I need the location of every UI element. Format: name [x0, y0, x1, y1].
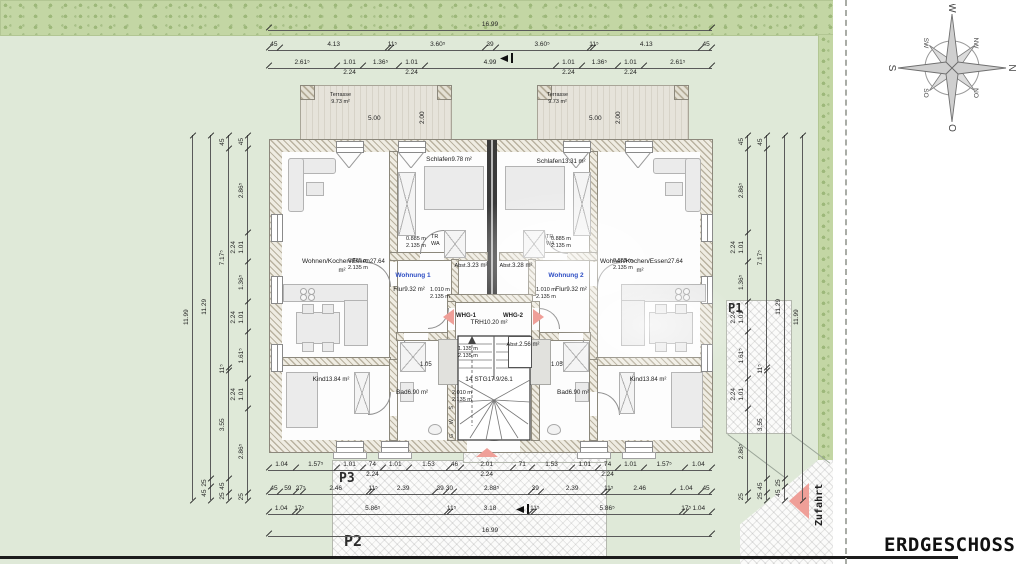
terrace-right-width-dim: 5.00 — [589, 116, 602, 123]
door-width: 0.885 m — [406, 236, 426, 242]
terrace-post — [674, 85, 689, 100]
window — [701, 344, 713, 372]
niche-dim: 1.05 — [420, 362, 432, 369]
dim-segment: 742.24 — [363, 460, 382, 476]
dim-segment: 2.46 — [607, 484, 672, 500]
dim-segment: 3.18 — [450, 504, 530, 520]
cooktop-burner — [300, 294, 307, 301]
dim-segment: 4.13 — [280, 40, 388, 56]
svg-text:SO: SO — [922, 88, 929, 97]
whg1-entry-label: WHG-1 — [456, 313, 476, 320]
dim-segment: 1.012.24 — [336, 58, 362, 74]
dining-table — [296, 312, 340, 344]
dining-table — [649, 312, 693, 344]
floor-plan-sheet: P1 P3 P2 Zufahrt Terrasse9.73 m² Terrass… — [0, 0, 1024, 564]
door-height: 2.135 m — [458, 353, 478, 359]
dim-segment: 3.55 — [756, 371, 772, 479]
chair — [675, 304, 687, 314]
dim-segment: 16.99 — [268, 526, 712, 542]
room-label-abst-core: Abst.2.56 m² — [493, 342, 553, 349]
dim-segment: 1.012.24 — [617, 58, 643, 74]
svg-text:N: N — [1006, 64, 1016, 71]
dim-segment: 1.57⁵ — [644, 460, 685, 476]
door-height: 2.135 m — [430, 294, 450, 300]
cooktop-burner — [675, 294, 682, 301]
driveway-label: Zufahrt — [814, 476, 825, 526]
dim-segment: 1.012.24 — [555, 58, 581, 74]
wardrobe — [573, 172, 591, 236]
terrace-right-label: Terrasse9.73 m² — [547, 92, 568, 105]
door-width: 0.885 m — [613, 258, 633, 264]
whg2-entry-label: WHG-2 — [503, 313, 523, 320]
terrace-left-label: Terrasse9.73 m² — [330, 92, 351, 105]
window-sill — [333, 452, 367, 459]
room-label-wohnen-right: Wohnen/Kochen/Essen27.64 m² — [600, 258, 680, 275]
dim-segment: 4.13 — [592, 40, 700, 56]
terrace-right-depth-dim: 2.00 — [616, 102, 623, 124]
dim-chain-left-total: 11.99 — [182, 135, 198, 500]
terrace-left — [300, 85, 452, 142]
chair — [675, 342, 687, 352]
dim-segment: 1.04 — [685, 460, 712, 476]
niche-dim: 1.05 — [551, 362, 563, 369]
door-width: 2.010 m — [452, 390, 472, 396]
door-width: 0.885 m — [551, 236, 571, 242]
dim-segment: 11.99 — [182, 135, 198, 500]
dim-segment: 11.29 — [200, 135, 216, 479]
door-height: 2.135 m — [536, 294, 556, 300]
room-label-abst-right: Abst.3.28 m² — [486, 263, 546, 270]
terrace-post — [437, 85, 452, 100]
site-boundary-line — [0, 556, 958, 559]
sofa — [685, 158, 701, 212]
dim-segment: 1.012.24 — [398, 58, 424, 74]
dim-chain-bottom-axes: 455927⁵2.4611⁵2.3939302.88⁵392.3911⁵2.46… — [268, 484, 712, 500]
toilet — [547, 424, 561, 435]
kitchen-unit — [344, 300, 368, 346]
dim-segment: 2.88⁵ — [453, 484, 530, 500]
dim-segment: 5.86⁵ — [533, 504, 681, 520]
door-height: 2.135 m — [452, 397, 472, 403]
dim-segment: 71 — [513, 460, 532, 476]
dim-segment: 1.012.24 — [737, 302, 753, 332]
property-dashed-line — [845, 0, 847, 564]
door-swing-mark — [336, 152, 362, 168]
door-width: 0.885 m — [348, 258, 368, 264]
dim-segment: 2.86⁵ — [737, 148, 753, 232]
chair — [322, 304, 334, 314]
coffee-table — [665, 182, 683, 196]
door-height: 2.135 m — [348, 265, 368, 271]
door-opening — [543, 253, 567, 260]
shower — [563, 342, 589, 372]
dim-segment: 1.01 — [382, 460, 408, 476]
dim-segment: 5.86⁵ — [299, 504, 447, 520]
door-swing-mark — [625, 152, 651, 168]
apartment-label-2: Wohnung 2 — [526, 272, 606, 280]
dim-segment: 45 — [756, 135, 772, 149]
dim-segment: 1.04 — [686, 504, 712, 520]
door-opening — [404, 333, 428, 340]
dim-segment: 25 — [737, 493, 753, 500]
window — [271, 344, 283, 372]
dim-segment: 2.86⁵ — [237, 148, 253, 232]
dim-chain-top-total: 16.99 — [268, 20, 712, 36]
coffee-table — [306, 182, 324, 196]
window — [271, 276, 283, 304]
dim-segment: 45 — [218, 135, 234, 149]
dim-chain-top-openings: 2.61⁵1.012.241.36⁵1.012.244.991.012.241.… — [268, 58, 712, 74]
sheet-title: ERDGESCHOSS — [884, 534, 1015, 556]
door-height: 2.135 m — [613, 265, 633, 271]
door-width: 1.010 m — [430, 287, 450, 293]
chair — [302, 342, 314, 352]
dim-segment: 1.61⁵ — [237, 332, 253, 379]
dim-segment: 1.36⁵ — [237, 262, 253, 302]
dim-chain-right-total: 11.99 — [792, 135, 808, 500]
dim-chain-right-openings: 452.86⁵1.012.241.36⁵1.012.241.61⁵1.012.2… — [737, 135, 753, 500]
room-label-kind-left: Kind13.84 m² — [291, 376, 371, 385]
dim-segment: 2.86⁵ — [737, 409, 753, 493]
svg-text:S: S — [888, 65, 897, 72]
dim-segment: 742.24 — [598, 460, 617, 476]
dim-segment: 1.012.24 — [237, 302, 253, 332]
dim-chain-left-openings: 452.86⁵1.012.241.36⁵1.012.241.61⁵1.012.2… — [237, 135, 253, 500]
dim-segment: 2.46 — [303, 484, 368, 500]
dim-segment: 1.04 — [268, 504, 294, 520]
kitchen-unit — [621, 300, 645, 346]
dim-chain-bottom-openings: 1.041.57⁵1.01742.241.011.53462.012.24711… — [268, 460, 712, 476]
dim-segment: 1.61⁵ — [737, 332, 753, 379]
apartment-label-1: Wohnung 1 — [373, 272, 453, 280]
door-width: 1.010 m — [536, 287, 556, 293]
dim-segment: 3.60⁵ — [391, 40, 485, 56]
dim-segment: 1.36⁵ — [582, 58, 618, 74]
svg-text:NW: NW — [972, 38, 979, 50]
wardrobe — [398, 172, 416, 236]
dim-chain-bottom-total: 16.99 — [268, 526, 712, 542]
dim-segment: 1.01 — [336, 460, 362, 476]
dim-segment: 25 — [218, 492, 234, 500]
room-label-schlafen-left: Schlafen9.78 m² — [409, 156, 489, 165]
dim-segment: 1.04 — [268, 460, 295, 476]
room-label-kind-right: Kind13.84 m² — [608, 376, 688, 385]
door-width: 1.135 m — [458, 346, 478, 352]
dim-segment: 7.17⁵ — [756, 149, 772, 367]
window — [701, 214, 713, 242]
dim-segment: 1.04 — [672, 484, 700, 500]
svg-text:SW: SW — [922, 38, 929, 49]
dim-segment: 1.36⁵ — [737, 262, 753, 302]
door-opening — [420, 253, 444, 260]
tr-label: TR — [431, 234, 438, 240]
dim-segment: 2.61⁵ — [644, 58, 712, 74]
dim-segment: 1.012.24 — [237, 379, 253, 409]
window-sill — [622, 452, 656, 459]
dim-segment: 4.99 — [425, 58, 555, 74]
dim-segment: 1.53 — [408, 460, 448, 476]
dim-segment: 3.60⁵ — [495, 40, 589, 56]
window-sill — [577, 452, 611, 459]
compass-rose: N O S W NO SO SW NW — [888, 4, 1016, 132]
wa-label: WA — [431, 241, 440, 247]
chair — [302, 304, 314, 314]
svg-text:NO: NO — [972, 88, 979, 98]
room-label-bad-left: Bad6.90 m² — [372, 389, 452, 398]
terrace-post — [300, 85, 315, 100]
dim-segment: 16.99 — [268, 20, 712, 36]
terrace-left-width-dim: 5.00 — [368, 116, 381, 123]
dim-segment: 1.36⁵ — [363, 58, 399, 74]
dim-chain-left-axes: 11.292545 — [200, 135, 216, 500]
window — [271, 214, 283, 242]
terrace-left-depth-dim: 2.00 — [420, 102, 427, 124]
wall-kind-left — [282, 358, 390, 365]
dim-segment: 2.012.24 — [460, 460, 513, 476]
dim-segment: 25 — [237, 493, 253, 500]
washer-dryer-niche — [523, 230, 545, 258]
dim-chain-right-axes: 11.292545 — [774, 135, 790, 500]
dim-segment: 2.39 — [540, 484, 604, 500]
room-label-trh: TRH10.20 m² — [449, 319, 529, 328]
svg-text:O: O — [946, 124, 957, 132]
door-height: 2.135 m — [406, 243, 426, 249]
door-height: 2.135 m — [551, 243, 571, 249]
abst-closet — [508, 336, 532, 368]
room-label-schlafen-right: Schlafen13.31 m² — [521, 158, 601, 167]
cooktop-burner — [308, 294, 315, 301]
chair — [655, 304, 667, 314]
window-sill — [378, 452, 412, 459]
door-opening — [559, 333, 583, 340]
dim-segment: 1.012.24 — [737, 379, 753, 409]
dim-segment: 2.61⁵ — [268, 58, 336, 74]
chair — [322, 342, 334, 352]
dim-chain-bottom-sub: 1.0417⁵5.86⁵11⁵3.1811⁵5.86⁵17⁵1.04 — [268, 504, 712, 520]
dim-segment: 1.01 — [617, 460, 643, 476]
dim-segment: 2.86⁵ — [237, 409, 253, 493]
double-bed — [505, 166, 565, 210]
wall-kind-right — [597, 358, 705, 365]
washer-dryer-niche — [444, 230, 466, 258]
chair — [655, 342, 667, 352]
dim-segment: 25 — [756, 492, 772, 500]
dim-segment: 1.53 — [532, 460, 572, 476]
sofa — [288, 158, 304, 212]
dim-segment: 2.39 — [371, 484, 435, 500]
svg-text:W: W — [946, 4, 957, 13]
dim-chain-top-axes: 454.1311⁵3.60⁵393.60⁵11⁵4.1345 — [268, 40, 712, 56]
dim-segment: 1.01 — [572, 460, 598, 476]
toilet — [428, 424, 442, 435]
double-bed — [424, 166, 484, 210]
dim-chain-right-sub: 457.17⁵11⁵3.554525 — [756, 135, 772, 500]
dim-segment: 11.29 — [774, 135, 790, 479]
cooktop-burner — [683, 294, 690, 301]
dim-segment: 11.99 — [792, 135, 808, 500]
room-label-wohnen-left: Wohnen/Kochen/Essen27.64 m² — [302, 258, 382, 275]
room-label-bad-right: Bad6.90 m² — [533, 389, 613, 398]
dim-segment: 1.57⁵ — [295, 460, 336, 476]
stair-label: 14 STG17.9/26.1 — [449, 376, 529, 385]
